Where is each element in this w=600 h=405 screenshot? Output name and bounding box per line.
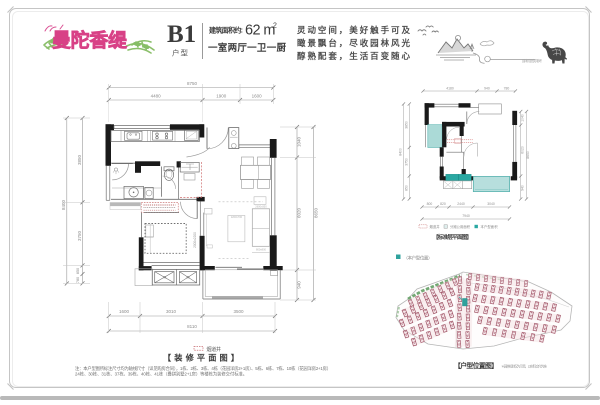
svg-text:7940: 7940: [462, 214, 470, 218]
svg-text:6020: 6020: [297, 207, 302, 218]
svg-text:8750: 8750: [187, 81, 198, 86]
svg-text:3010: 3010: [166, 309, 177, 314]
svg-text:1600: 1600: [119, 309, 130, 314]
svg-text:8650: 8650: [314, 207, 319, 218]
svg-text:1900: 1900: [216, 94, 227, 99]
svg-text:780: 780: [504, 86, 510, 90]
svg-text:【标准层平面图】: 【标准层平面图】: [433, 233, 472, 241]
svg-text:2440: 2440: [457, 202, 465, 206]
svg-text:8110: 8110: [187, 324, 197, 329]
svg-text:【装修平面图】: 【装修平面图】: [163, 353, 239, 363]
svg-text:【户型位置图】: 【户型位置图】: [454, 361, 498, 370]
svg-text:3850: 3850: [77, 154, 82, 165]
svg-text:1600: 1600: [252, 94, 263, 99]
svg-text:850: 850: [76, 268, 80, 274]
svg-text:4180: 4180: [446, 86, 454, 90]
svg-text:＊园林规划仅为示意，以实际交付为准: ＊园林规划仅为示意，以实际交付为准: [501, 363, 547, 368]
svg-text:3040: 3040: [487, 202, 495, 206]
svg-text:3850: 3850: [404, 121, 408, 129]
svg-text:820: 820: [440, 202, 446, 206]
svg-text:24栋、30栋、31栋、37栋、39栋、40栋、41栋（叠拼: 24栋、30栋、31栋、37栋、39栋、40栋、41栋（叠拼别墅2+1房）等楼栋…: [75, 370, 247, 377]
svg-text:8650: 8650: [526, 151, 530, 159]
svg-text:6020: 6020: [520, 146, 524, 154]
svg-text:3500: 3500: [233, 309, 244, 314]
svg-text:本户型面积: 本户型面积: [481, 224, 499, 229]
svg-text:850: 850: [404, 185, 408, 191]
svg-text:940: 940: [520, 185, 524, 191]
svg-text:8400: 8400: [399, 148, 403, 156]
svg-text:940: 940: [484, 86, 490, 90]
svg-text:1040: 1040: [520, 114, 524, 122]
svg-text:800x800: 800x800: [256, 248, 267, 252]
svg-text:1040: 1040: [297, 136, 302, 147]
svg-text:780: 780: [76, 277, 80, 283]
svg-text:分摊公用面积: 分摊公用面积: [450, 224, 471, 229]
svg-text:烟道井: 烟道井: [430, 224, 441, 229]
svg-text:940: 940: [297, 281, 302, 289]
svg-text:2000x2200: 2000x2200: [193, 232, 197, 248]
svg-text:（本户型位置）: （本户型位置）: [404, 254, 433, 261]
svg-text:4480: 4480: [151, 94, 162, 99]
svg-text:3750: 3750: [404, 158, 408, 166]
svg-text:3750: 3750: [77, 230, 82, 241]
svg-text:8400: 8400: [61, 199, 66, 210]
svg-text:1200x700: 1200x700: [231, 215, 243, 219]
svg-text:800: 800: [427, 202, 433, 206]
svg-text:2600x950: 2600x950: [255, 205, 267, 209]
